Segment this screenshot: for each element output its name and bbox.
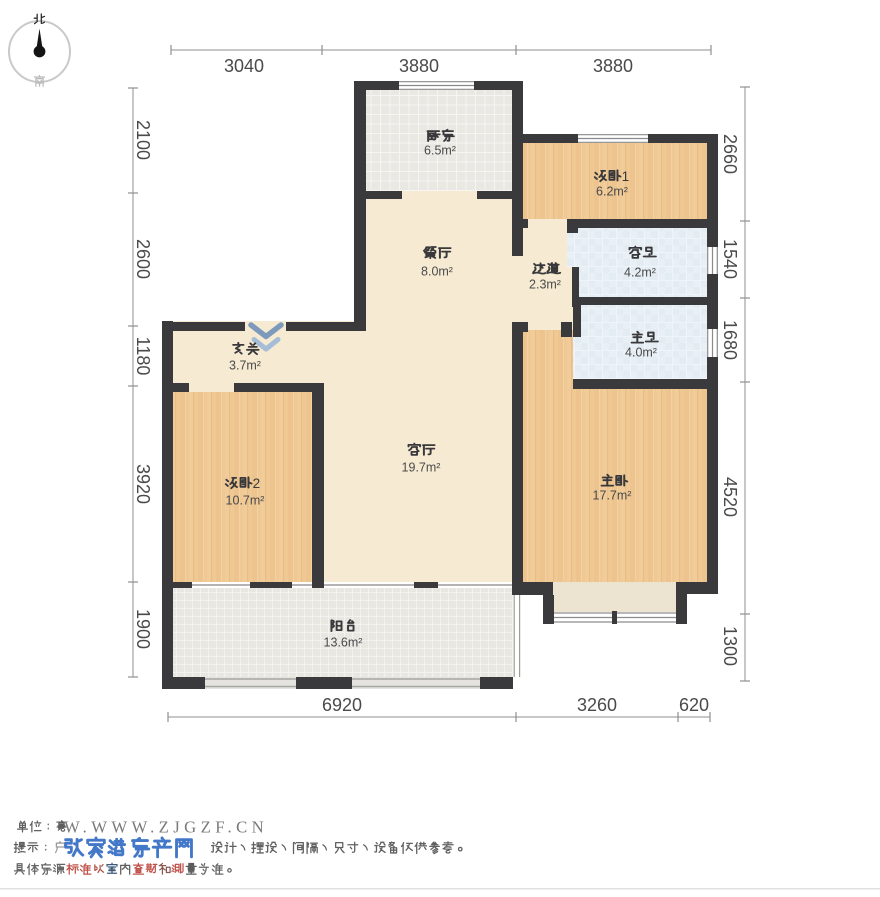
svg-text:3920: 3920 (133, 464, 153, 504)
svg-text:3040: 3040 (224, 56, 264, 76)
svg-text:620: 620 (679, 695, 709, 715)
svg-text:2100: 2100 (133, 120, 153, 160)
svg-text:6920: 6920 (322, 695, 362, 715)
svg-text:10.7m²: 10.7m² (226, 493, 265, 507)
svg-text:3880: 3880 (593, 56, 633, 76)
svg-text:2660: 2660 (720, 134, 740, 174)
svg-text:6.2m²: 6.2m² (596, 184, 628, 198)
svg-text:3880: 3880 (399, 56, 439, 76)
svg-text:19.7m²: 19.7m² (402, 460, 441, 474)
svg-text:6.5m²: 6.5m² (424, 143, 456, 157)
svg-text:1540: 1540 (720, 239, 740, 279)
svg-text:1900: 1900 (133, 609, 153, 649)
svg-text:3260: 3260 (577, 695, 617, 715)
svg-text:3.7m²: 3.7m² (229, 358, 261, 372)
svg-text:1680: 1680 (720, 320, 740, 360)
svg-text:W.WWW.ZJGZF.CN: W.WWW.ZJGZF.CN (64, 818, 268, 837)
svg-text:17.7m²: 17.7m² (593, 488, 632, 502)
svg-text:4.0m²: 4.0m² (625, 345, 657, 359)
svg-text:1: 1 (622, 169, 630, 184)
svg-text:13.6m²: 13.6m² (324, 635, 363, 649)
svg-text:4520: 4520 (720, 477, 740, 517)
svg-text:1300: 1300 (720, 626, 740, 666)
svg-text:2600: 2600 (133, 239, 153, 279)
svg-text:4.2m²: 4.2m² (624, 265, 656, 279)
svg-text:2: 2 (253, 476, 261, 491)
svg-text:2.3m²: 2.3m² (529, 277, 561, 291)
svg-text:1180: 1180 (133, 337, 153, 376)
svg-text:8.0m²: 8.0m² (421, 264, 453, 278)
